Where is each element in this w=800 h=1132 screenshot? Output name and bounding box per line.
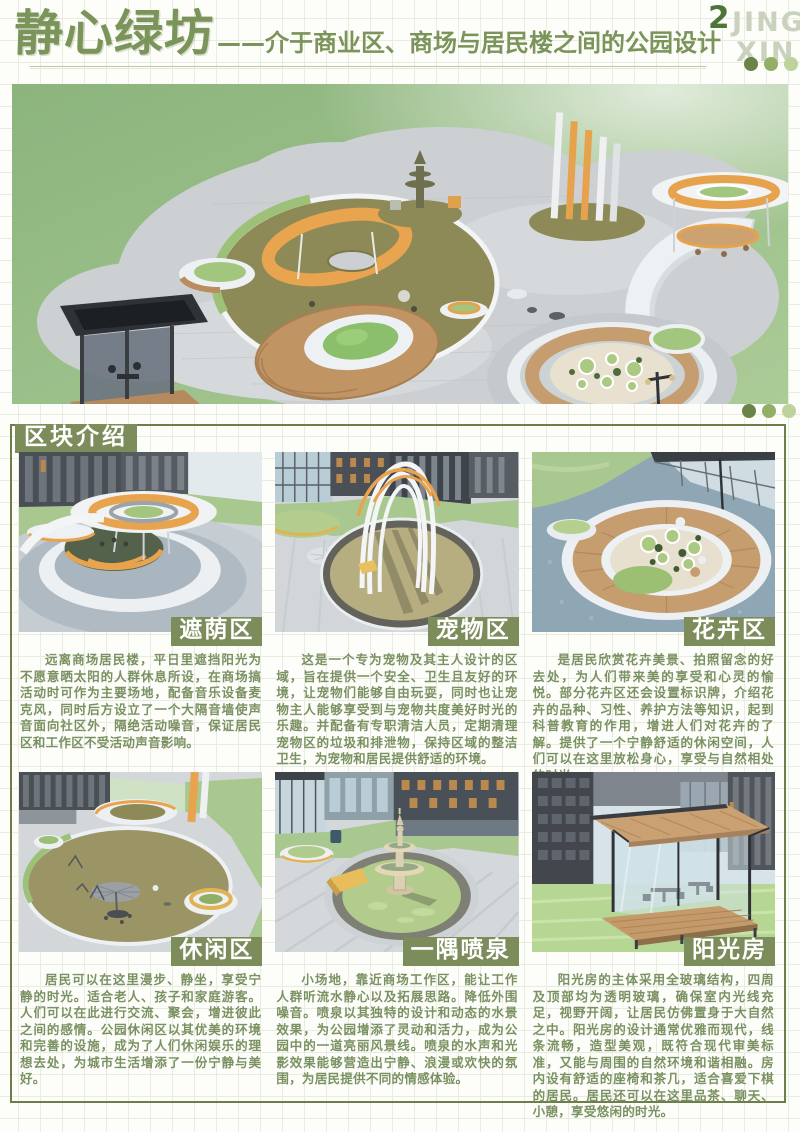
zone-card: 花卉区 是居民欣赏花卉美景、拍照留念的好去处，为人们带来美的享受和心灵的愉悦。部… xyxy=(532,452,775,772)
sunroom-render: 阳光房 xyxy=(532,772,775,952)
zone-card: 遮荫区 远离商场居民楼，平日里遮挡阳光为不愿意晒太阳的人群休息所设，在商场搞活动… xyxy=(19,452,262,772)
dot-icon xyxy=(782,404,796,418)
zone-card: 休闲区 居民可以在这里漫步、静坐，享受宁静的时光。适合老人、孩子和家庭游客。人们… xyxy=(19,772,262,1092)
zone-description: 居民可以在这里漫步、静坐，享受宁静的时光。适合老人、孩子和家庭游客。人们可以在此… xyxy=(20,972,261,1088)
dot-icon xyxy=(742,404,756,418)
zone-name-badge: 宠物区 xyxy=(428,617,519,646)
zone-card: 宠物区 这是一个专为宠物及其主人设计的区域，旨在提供一个安全、卫生且友好的环境，… xyxy=(275,452,518,772)
pet-area-render: 宠物区 xyxy=(275,452,518,632)
page-title: 静心绿坊 xyxy=(13,4,215,64)
page-number: 2 xyxy=(708,0,730,36)
shade-area-render: 遮荫区 xyxy=(19,452,262,632)
zone-description: 阳光房的主体采用全玻璃结构，四周及顶部均为透明玻璃，确保室内光线充足，视野开阔，… xyxy=(533,972,774,1121)
page-subtitle: ——介于商业区、商场与居民楼之间的公园设计 xyxy=(217,23,721,64)
zone-description: 小场地，靠近商场工作区，能让工作人群听流水静心以及拓展思路。降低外围噪音。喷泉以… xyxy=(276,972,517,1088)
zone-name-badge: 遮荫区 xyxy=(171,617,262,646)
zone-card: 一隅喷泉 小场地，靠近商场工作区，能让工作人群听流水静心以及拓展思路。降低外围噪… xyxy=(275,772,518,1092)
dot-icon xyxy=(764,57,778,71)
section-label: 区块介绍 xyxy=(15,424,137,453)
zone-description: 这是一个专为宠物及其主人设计的区域，旨在提供一个安全、卫生且友好的环境，让宠物们… xyxy=(276,652,517,768)
zone-description: 是居民欣赏花卉美景、拍照留念的好去处，为人们带来美的享受和心灵的愉悦。部分花卉区… xyxy=(533,652,774,784)
zones-grid: 遮荫区 远离商场居民楼，平日里遮挡阳光为不愿意晒太阳的人群休息所设，在商场搞活动… xyxy=(12,452,784,1092)
poster-page: 静心绿坊 ——介于商业区、商场与居民楼之间的公园设计 2 JING XIN xyxy=(0,0,800,1132)
dot-icon xyxy=(784,57,798,71)
leisure-area-render: 休闲区 xyxy=(19,772,262,952)
zone-name-badge: 休闲区 xyxy=(171,937,262,966)
header: 静心绿坊 ——介于商业区、商场与居民楼之间的公园设计 xyxy=(14,4,721,64)
zones-section: 区块介绍 xyxy=(10,424,786,1103)
logo-jing: JING xyxy=(732,8,800,38)
fountain-render: 一隅喷泉 xyxy=(275,772,518,952)
dot-icon xyxy=(762,404,776,418)
dots-decoration xyxy=(744,57,798,71)
dots-decoration xyxy=(742,404,796,418)
zone-description: 远离商场居民楼，平日里遮挡阳光为不愿意晒太阳的人群休息所设，在商场搞活动时可作为… xyxy=(20,652,261,751)
zone-name-badge: 阳光房 xyxy=(684,937,775,966)
dot-icon xyxy=(744,57,758,71)
park-overview-render xyxy=(12,84,788,404)
zone-name-badge: 一隅喷泉 xyxy=(403,937,519,966)
zone-name-badge: 花卉区 xyxy=(684,617,775,646)
flower-area-render: 花卉区 xyxy=(532,452,775,632)
zone-card: 阳光房 阳光房的主体采用全玻璃结构，四周及顶部均为透明玻璃，确保室内光线充足，视… xyxy=(532,772,775,1092)
header-underline xyxy=(30,66,706,69)
